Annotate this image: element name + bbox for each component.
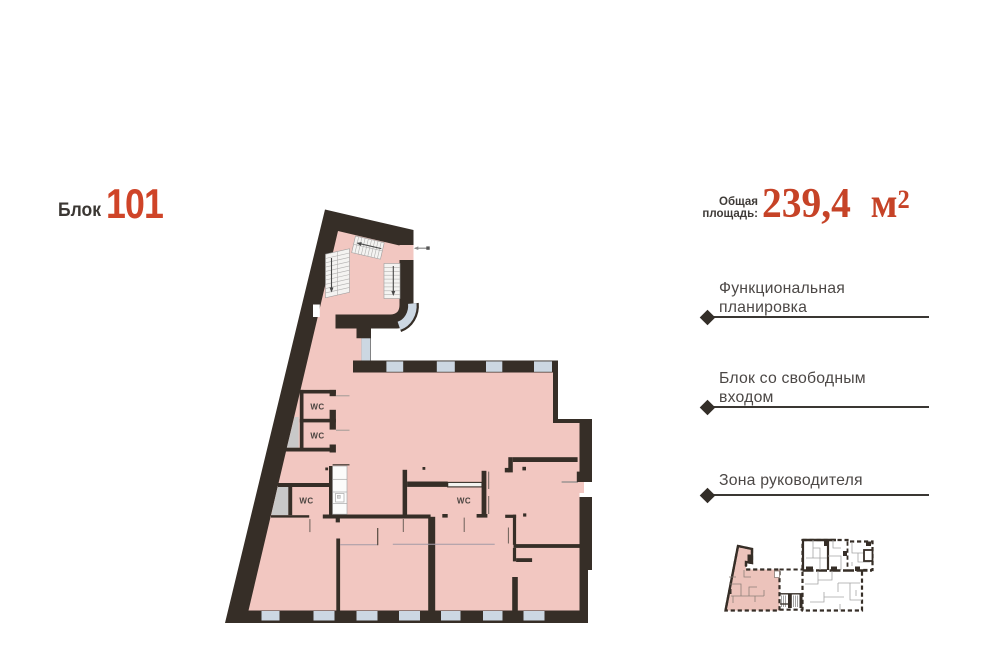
svg-text:WC: WC	[310, 432, 324, 441]
svg-text:WC: WC	[299, 497, 313, 506]
svg-text:WC: WC	[457, 497, 471, 506]
svg-text:WC: WC	[310, 403, 324, 412]
